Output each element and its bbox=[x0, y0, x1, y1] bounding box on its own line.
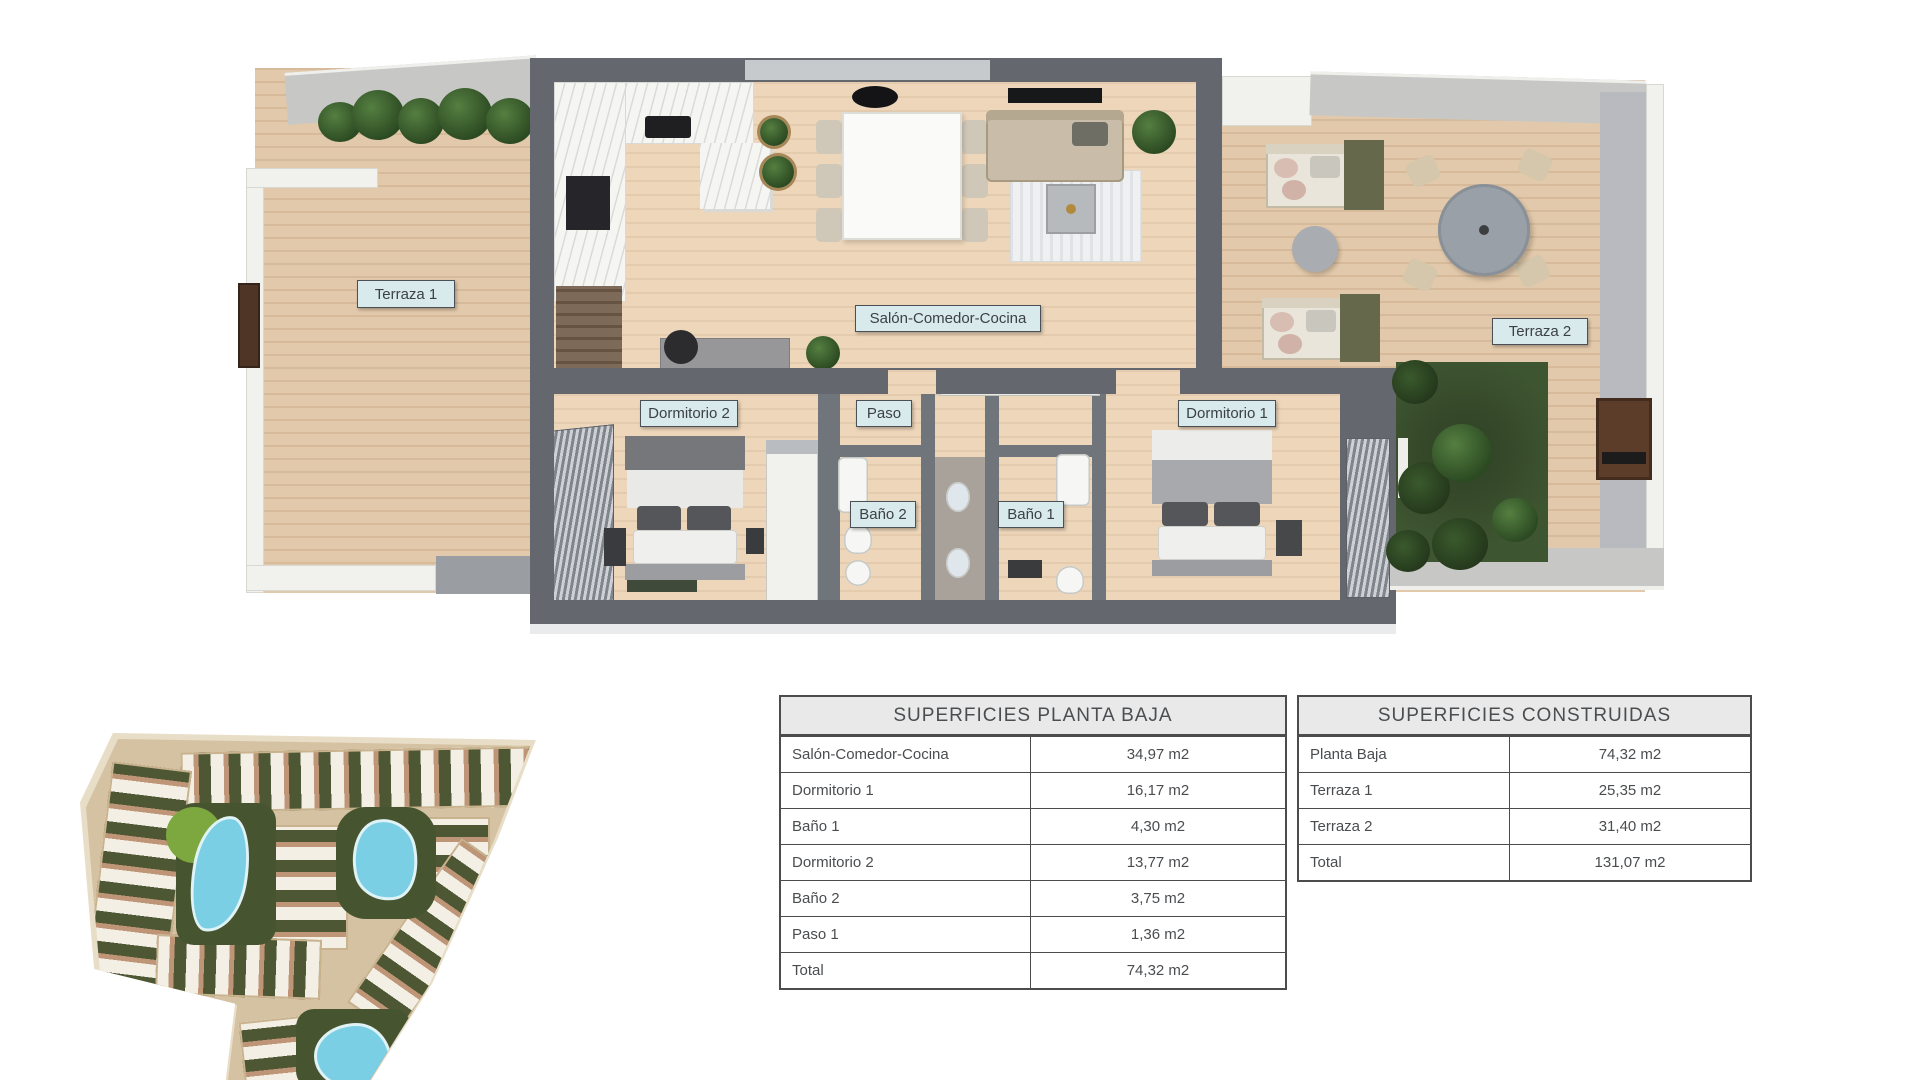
room-label-text: Baño 1 bbox=[1007, 506, 1055, 523]
row-label: Total bbox=[781, 953, 1031, 988]
row-label: Baño 1 bbox=[781, 809, 1031, 844]
sofa bbox=[986, 110, 1124, 182]
outdoor-sofa-1 bbox=[1266, 144, 1382, 208]
pendant-lamp bbox=[852, 86, 898, 108]
site-plan-ground bbox=[86, 739, 544, 1080]
table-row: Baño 2 3,75 m2 bbox=[781, 880, 1285, 916]
building-top-window bbox=[745, 60, 990, 80]
row-label: Dormitorio 2 bbox=[781, 845, 1031, 880]
dorm1-nightstand bbox=[1276, 520, 1302, 556]
row-value: 1,36 m2 bbox=[1031, 917, 1285, 952]
row-value: 74,32 m2 bbox=[1510, 737, 1750, 772]
table-row: Terraza 1 25,35 m2 bbox=[1299, 772, 1750, 808]
terraza2-wall-right bbox=[1600, 92, 1646, 562]
dining-chair bbox=[816, 208, 842, 242]
plant-pot-2 bbox=[762, 156, 794, 188]
dorm2-nightstand bbox=[746, 528, 764, 554]
wardrobe bbox=[766, 440, 818, 602]
outdoor-coffee-table bbox=[1292, 226, 1338, 272]
garden-palm bbox=[1432, 424, 1492, 482]
sofa-cushion bbox=[1072, 122, 1108, 146]
table-title: SUPERFICIES CONSTRUIDAS bbox=[1299, 697, 1750, 736]
room-label-paso: Paso bbox=[856, 400, 912, 427]
dorm1-window-blinds bbox=[1346, 438, 1390, 598]
outdoor-sofa-2 bbox=[1262, 298, 1378, 360]
room-label-text: Paso bbox=[867, 405, 901, 422]
shower-head bbox=[946, 482, 970, 512]
cooktop bbox=[645, 116, 691, 138]
dining-table bbox=[842, 112, 962, 240]
terraza1-wall-left bbox=[246, 168, 264, 593]
row-value: 4,30 m2 bbox=[1031, 809, 1285, 844]
shower-head bbox=[946, 548, 970, 578]
bath-mat-bano1 bbox=[1008, 560, 1042, 578]
wall-bano1-dorm1 bbox=[1092, 394, 1106, 600]
garden-bush bbox=[1386, 530, 1430, 572]
tv-panel bbox=[1008, 88, 1102, 103]
desk-chair bbox=[664, 330, 698, 364]
toilet-bano2 bbox=[844, 524, 872, 554]
oven-column bbox=[566, 176, 610, 230]
room-label-salon: Salón-Comedor-Cocina bbox=[855, 305, 1041, 332]
dining-chair bbox=[962, 208, 988, 242]
row-value: 74,32 m2 bbox=[1031, 953, 1285, 988]
room-label-terraza-1: Terraza 1 bbox=[357, 280, 455, 308]
row-label: Total bbox=[1299, 845, 1510, 880]
plant-by-salon bbox=[806, 336, 840, 370]
dorm1-doorway bbox=[1116, 370, 1180, 394]
wall-corridor-bano1 bbox=[985, 394, 999, 600]
row-value: 3,75 m2 bbox=[1031, 881, 1285, 916]
building-wall-right bbox=[1196, 58, 1222, 368]
table-superficies-planta-baja: SUPERFICIES PLANTA BAJA Salón-Comedor-Co… bbox=[779, 695, 1287, 990]
room-label-text: Dormitorio 1 bbox=[1186, 405, 1268, 422]
table-row: Dormitorio 1 16,17 m2 bbox=[781, 772, 1285, 808]
row-label: Planta Baja bbox=[1299, 737, 1510, 772]
room-label-dormitorio-1: Dormitorio 1 bbox=[1178, 400, 1276, 427]
table-row: Dormitorio 2 13,77 m2 bbox=[781, 844, 1285, 880]
housing-row bbox=[76, 761, 192, 1069]
terraza2-parapet bbox=[1309, 71, 1646, 124]
plant-pot-1 bbox=[760, 118, 788, 146]
room-label-dormitorio-2: Dormitorio 2 bbox=[640, 400, 738, 427]
dining-chair bbox=[816, 120, 842, 154]
dining-chair bbox=[816, 164, 842, 198]
kitchen-island bbox=[700, 143, 770, 209]
table-title-text: SUPERFICIES PLANTA BAJA bbox=[893, 705, 1172, 727]
room-label-text: Dormitorio 2 bbox=[648, 405, 730, 422]
terraza2-entry-wall bbox=[1222, 76, 1312, 126]
dining-chair bbox=[962, 164, 988, 198]
pool bbox=[314, 1023, 392, 1089]
room-label-bano-1: Baño 1 bbox=[998, 501, 1064, 528]
bathtub-bano1 bbox=[1056, 454, 1090, 506]
table-umbrella-hole bbox=[1479, 225, 1489, 235]
garden-bush bbox=[1432, 518, 1488, 570]
row-value: 13,77 m2 bbox=[1031, 845, 1285, 880]
row-label: Baño 2 bbox=[781, 881, 1031, 916]
room-label-terraza-2: Terraza 2 bbox=[1492, 318, 1588, 345]
row-label: Paso 1 bbox=[781, 917, 1031, 952]
bbq-unit bbox=[1596, 398, 1652, 480]
floorplan-sheet: Terraza 1 Salón-Comedor-Cocina Terraza 2… bbox=[0, 0, 1920, 1080]
row-value: 31,40 m2 bbox=[1510, 809, 1750, 844]
room-label-text: Salón-Comedor-Cocina bbox=[870, 310, 1027, 327]
wall-bano2-top bbox=[840, 445, 921, 457]
terraza1-wall-bottom bbox=[246, 565, 436, 591]
garden-bush-light bbox=[1492, 498, 1538, 542]
table-title: SUPERFICIES PLANTA BAJA bbox=[781, 697, 1285, 736]
shower-corridor-floor bbox=[935, 457, 985, 600]
table-decor bbox=[1066, 204, 1076, 214]
bbq-grill-slot bbox=[1602, 452, 1646, 464]
paso-doorway bbox=[888, 370, 936, 394]
row-label: Terraza 2 bbox=[1299, 809, 1510, 844]
room-label-text: Terraza 2 bbox=[1509, 323, 1572, 340]
terraza1-wall-top-segment bbox=[246, 168, 378, 188]
table-row: Planta Baja 74,32 m2 bbox=[1299, 736, 1750, 772]
table-superficies-construidas: SUPERFICIES CONSTRUIDAS Planta Baja 74,3… bbox=[1297, 695, 1752, 882]
wall-bano2-corridor bbox=[921, 394, 935, 600]
wall-dorm2-bano2 bbox=[818, 394, 840, 600]
row-label: Salón-Comedor-Cocina bbox=[781, 737, 1031, 772]
bidet-bano2 bbox=[845, 560, 871, 586]
row-value: 25,35 m2 bbox=[1510, 773, 1750, 808]
row-value: 131,07 m2 bbox=[1510, 845, 1750, 880]
dorm2-nightstand bbox=[604, 528, 626, 566]
table-row: Paso 1 1,36 m2 bbox=[781, 916, 1285, 952]
dining-chair bbox=[962, 120, 988, 154]
plant-living-corner bbox=[1132, 110, 1176, 154]
site-plan bbox=[80, 733, 550, 1080]
sideboard bbox=[556, 286, 622, 376]
building-base-shadow bbox=[530, 624, 1396, 634]
building-wall-bottom bbox=[530, 600, 1396, 624]
building-wall-divider bbox=[530, 368, 1396, 394]
terraza1-corner-wall bbox=[436, 556, 532, 594]
table-row: Salón-Comedor-Cocina 34,97 m2 bbox=[781, 736, 1285, 772]
table-row: Total 131,07 m2 bbox=[1299, 844, 1750, 880]
row-label: Dormitorio 1 bbox=[781, 773, 1031, 808]
dorm2-bed bbox=[625, 436, 745, 580]
room-label-text: Terraza 1 bbox=[375, 286, 438, 303]
room-label-text: Baño 2 bbox=[859, 506, 907, 523]
row-value: 34,97 m2 bbox=[1031, 737, 1285, 772]
table-row: Terraza 2 31,40 m2 bbox=[1299, 808, 1750, 844]
floor-plan: Terraza 1 Salón-Comedor-Cocina Terraza 2… bbox=[0, 0, 1920, 660]
dorm1-bed bbox=[1152, 430, 1272, 576]
row-label: Terraza 1 bbox=[1299, 773, 1510, 808]
table-row: Baño 1 4,30 m2 bbox=[781, 808, 1285, 844]
row-value: 16,17 m2 bbox=[1031, 773, 1285, 808]
toilet-bano1 bbox=[1056, 566, 1084, 594]
terraza1-planter bbox=[318, 88, 536, 152]
table-title-text: SUPERFICIES CONSTRUIDAS bbox=[1378, 705, 1671, 727]
terraza1-door bbox=[238, 283, 260, 368]
building-wall-left bbox=[530, 58, 554, 624]
terraza2-wall-right-outer bbox=[1646, 84, 1664, 589]
room-label-bano-2: Baño 2 bbox=[850, 501, 916, 528]
garden-bush bbox=[1392, 360, 1438, 404]
table-row: Total 74,32 m2 bbox=[781, 952, 1285, 988]
